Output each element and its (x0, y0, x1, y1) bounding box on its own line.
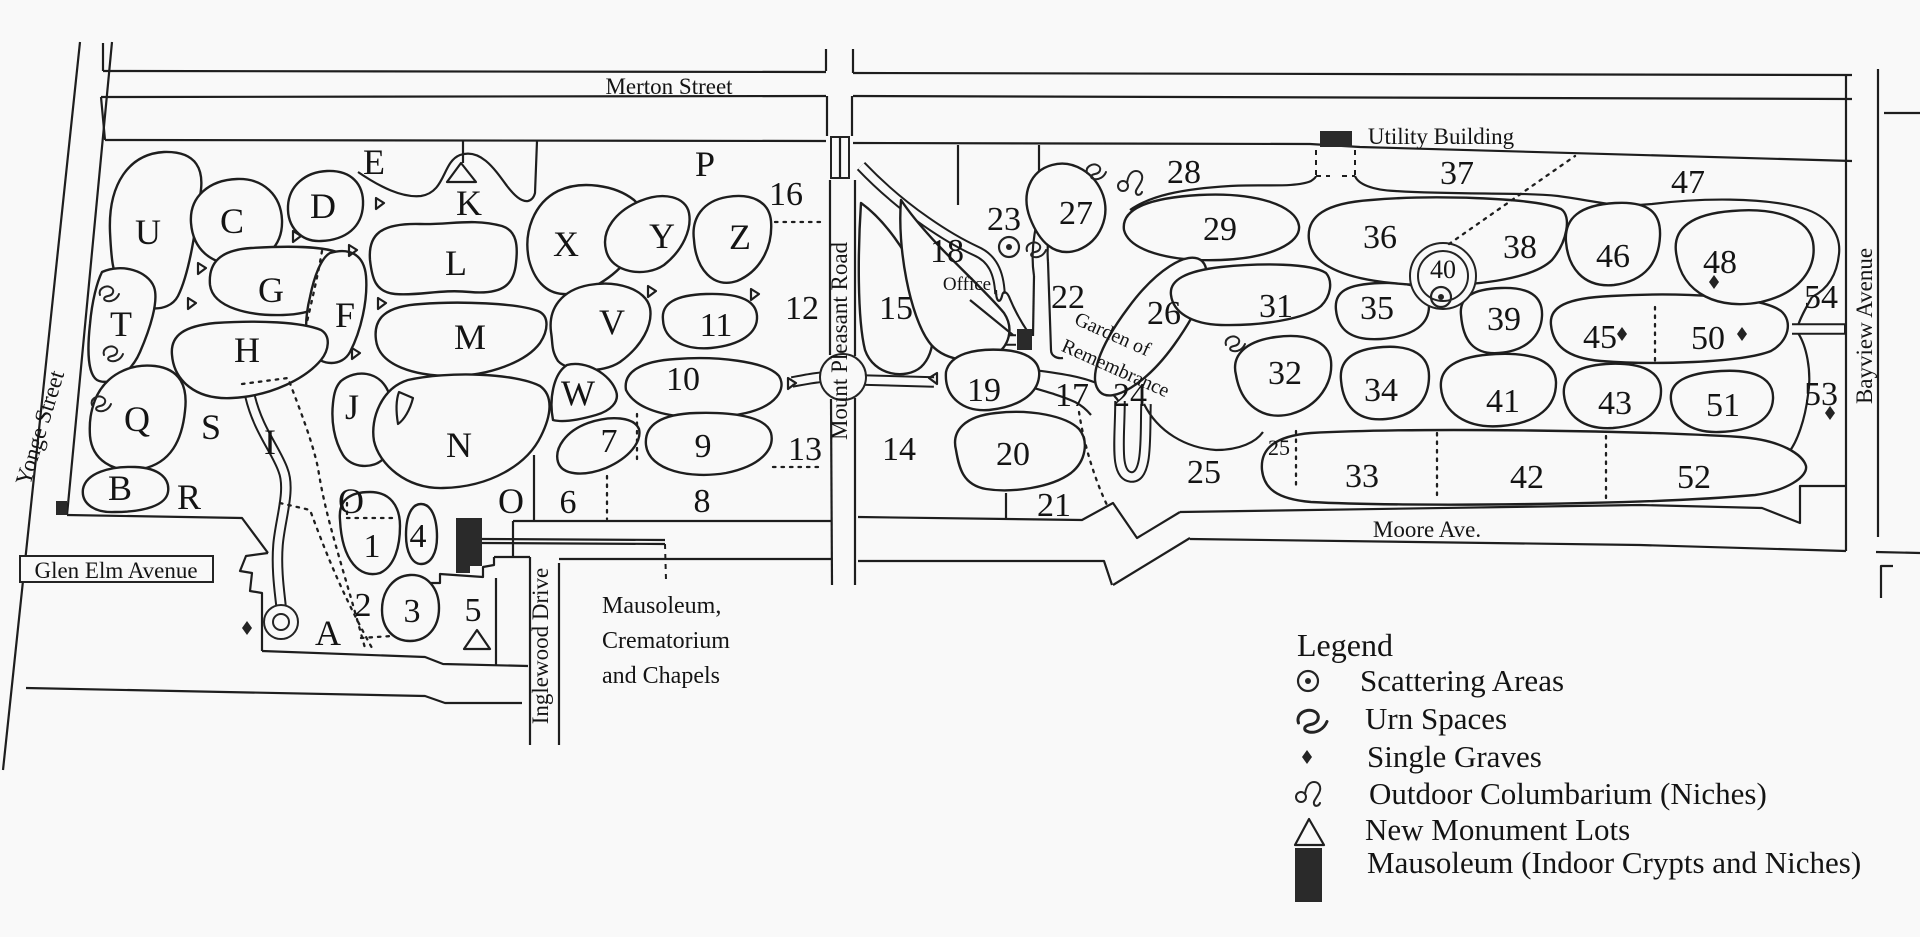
svg-text:Office: Office (943, 274, 991, 295)
svg-text:17: 17 (1055, 377, 1089, 414)
svg-text:10: 10 (666, 361, 700, 398)
svg-text:Mausoleum (Indoor Crypts and N: Mausoleum (Indoor Crypts and Niches) (1367, 845, 1861, 880)
svg-text:and Chapels: and Chapels (602, 663, 720, 689)
svg-text:I: I (264, 422, 276, 462)
svg-text:19: 19 (967, 372, 1001, 409)
svg-text:A: A (315, 613, 341, 653)
svg-text:2: 2 (355, 587, 372, 624)
svg-text:51: 51 (1706, 387, 1740, 424)
svg-text:48: 48 (1703, 244, 1737, 281)
svg-text:H: H (234, 330, 260, 370)
svg-text:Outdoor Columbarium (Niches): Outdoor Columbarium (Niches) (1369, 776, 1767, 811)
svg-text:Bayview Avenue: Bayview Avenue (1852, 248, 1877, 404)
svg-text:41: 41 (1486, 383, 1520, 420)
svg-text:35: 35 (1360, 290, 1394, 327)
svg-text:Inglewood Drive: Inglewood Drive (528, 568, 553, 725)
svg-text:21: 21 (1037, 487, 1071, 524)
svg-text:D: D (310, 186, 336, 226)
svg-text:Mount Pleasant Road: Mount Pleasant Road (827, 241, 852, 440)
svg-text:Mausoleum,: Mausoleum, (602, 593, 721, 619)
svg-text:27: 27 (1059, 195, 1093, 232)
svg-text:New Monument Lots: New Monument Lots (1365, 812, 1630, 847)
svg-text:34: 34 (1364, 372, 1398, 409)
svg-text:16: 16 (769, 176, 803, 213)
svg-text:8: 8 (694, 483, 711, 520)
svg-text:Legend: Legend (1297, 627, 1393, 663)
svg-text:X: X (553, 224, 579, 264)
svg-text:V: V (599, 302, 625, 342)
svg-text:F: F (335, 295, 355, 335)
svg-text:47: 47 (1671, 164, 1705, 201)
svg-text:Moore Ave.: Moore Ave. (1373, 517, 1481, 542)
svg-text:32: 32 (1268, 355, 1302, 392)
svg-text:12: 12 (785, 290, 819, 327)
svg-text:Crematorium: Crematorium (602, 628, 730, 654)
svg-text:R: R (177, 477, 201, 517)
svg-text:O: O (338, 481, 364, 521)
svg-text:U: U (135, 212, 161, 252)
svg-text:46: 46 (1596, 238, 1630, 275)
svg-text:Single Graves: Single Graves (1367, 739, 1542, 774)
svg-text:25: 25 (1268, 435, 1290, 460)
svg-text:31: 31 (1259, 288, 1293, 325)
svg-text:15: 15 (879, 290, 913, 327)
svg-text:25: 25 (1187, 454, 1221, 491)
svg-text:53: 53 (1804, 376, 1838, 413)
svg-text:4: 4 (410, 518, 427, 555)
svg-text:N: N (446, 425, 472, 465)
svg-text:3: 3 (404, 593, 421, 630)
svg-text:G: G (258, 270, 284, 310)
svg-text:45: 45 (1583, 319, 1617, 356)
svg-text:14: 14 (882, 431, 916, 468)
svg-text:28: 28 (1167, 154, 1201, 191)
svg-text:Urn Spaces: Urn Spaces (1365, 701, 1507, 736)
svg-text:11: 11 (700, 307, 733, 344)
svg-text:29: 29 (1203, 211, 1237, 248)
svg-text:52: 52 (1677, 459, 1711, 496)
svg-text:O: O (498, 481, 524, 521)
svg-text:20: 20 (996, 436, 1030, 473)
svg-text:J: J (345, 387, 359, 427)
svg-text:Utility Building: Utility Building (1368, 124, 1515, 149)
svg-text:Q: Q (124, 399, 150, 439)
svg-text:M: M (454, 317, 486, 357)
svg-text:Merton Street: Merton Street (605, 74, 733, 99)
svg-text:K: K (456, 183, 482, 223)
svg-text:Glen Elm Avenue: Glen Elm Avenue (34, 558, 197, 583)
svg-text:43: 43 (1598, 385, 1632, 422)
svg-text:T: T (110, 304, 132, 344)
svg-text:C: C (220, 201, 244, 241)
svg-text:L: L (445, 243, 467, 283)
svg-text:S: S (201, 407, 221, 447)
svg-text:Y: Y (649, 216, 675, 256)
svg-text:Z: Z (729, 217, 751, 257)
svg-text:W: W (561, 373, 595, 413)
svg-text:33: 33 (1345, 458, 1379, 495)
svg-text:54: 54 (1804, 279, 1838, 316)
svg-text:39: 39 (1487, 301, 1521, 338)
svg-text:18: 18 (930, 233, 964, 270)
svg-text:9: 9 (695, 428, 712, 465)
svg-text:E: E (363, 142, 385, 182)
svg-text:37: 37 (1440, 155, 1474, 192)
svg-text:50: 50 (1691, 320, 1725, 357)
svg-text:23: 23 (987, 201, 1021, 238)
svg-text:36: 36 (1363, 219, 1397, 256)
svg-text:38: 38 (1503, 229, 1537, 266)
svg-text:40: 40 (1430, 255, 1456, 284)
svg-text:42: 42 (1510, 459, 1544, 496)
svg-text:6: 6 (560, 484, 577, 521)
svg-text:13: 13 (788, 431, 822, 468)
svg-text:Scattering Areas: Scattering Areas (1360, 663, 1564, 698)
svg-text:P: P (695, 144, 715, 184)
svg-text:1: 1 (364, 528, 381, 565)
svg-text:5: 5 (465, 592, 482, 629)
svg-text:26: 26 (1147, 295, 1181, 332)
svg-text:B: B (108, 468, 132, 508)
svg-text:7: 7 (601, 423, 618, 460)
